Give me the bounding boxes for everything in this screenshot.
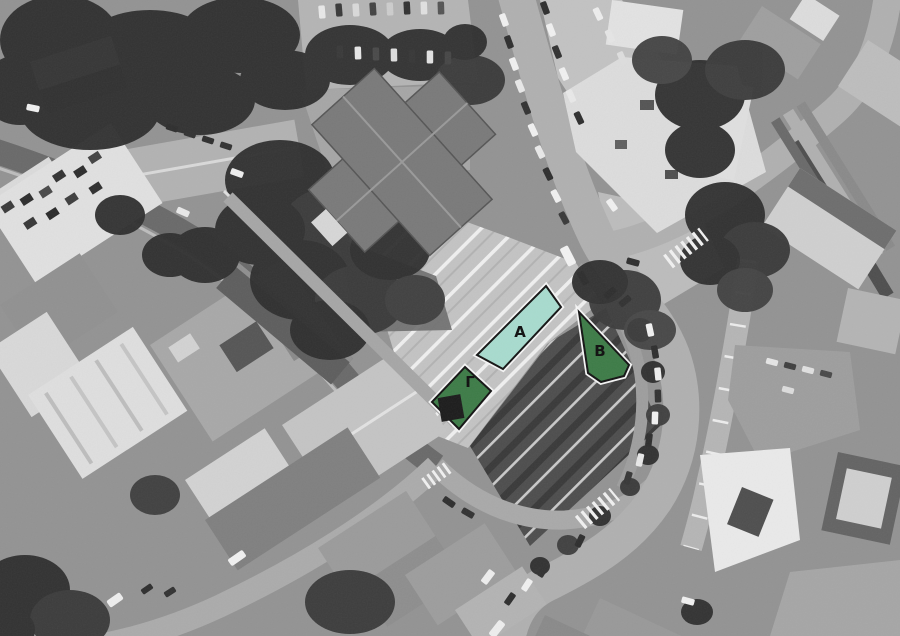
roof-object bbox=[615, 140, 627, 149]
tree-canopy bbox=[665, 122, 735, 178]
roof-object bbox=[640, 100, 654, 110]
zone-beta-label: Β bbox=[594, 342, 605, 360]
zone-gamma-marker bbox=[438, 394, 465, 422]
car bbox=[335, 3, 343, 17]
car bbox=[352, 3, 359, 16]
tree-canopy bbox=[145, 65, 255, 135]
tree-canopy bbox=[572, 260, 628, 304]
aerial-photo: Α Β Γ bbox=[0, 0, 900, 636]
zone-alpha-label: Α bbox=[514, 323, 526, 341]
car bbox=[654, 367, 662, 381]
car bbox=[369, 2, 376, 15]
car bbox=[437, 1, 444, 14]
car bbox=[373, 47, 380, 60]
car bbox=[654, 389, 661, 402]
tree-canopy bbox=[130, 475, 180, 515]
car bbox=[386, 2, 393, 15]
tree-canopy bbox=[385, 275, 445, 325]
car bbox=[651, 411, 658, 424]
car bbox=[409, 50, 416, 63]
car bbox=[403, 1, 410, 14]
aerial-photo-map: Α Β Γ bbox=[0, 0, 900, 636]
roof-object bbox=[665, 170, 678, 179]
car bbox=[318, 5, 326, 19]
tree-canopy bbox=[305, 570, 395, 634]
tree-canopy bbox=[142, 233, 198, 277]
car bbox=[420, 1, 427, 14]
tree-canopy bbox=[705, 40, 785, 100]
tree-canopy bbox=[717, 268, 773, 312]
car bbox=[427, 51, 434, 64]
car bbox=[336, 45, 343, 58]
car bbox=[354, 46, 361, 59]
zone-gamma-label: Γ bbox=[465, 373, 475, 391]
tree-canopy bbox=[95, 195, 145, 235]
car bbox=[445, 52, 452, 65]
tree-canopy bbox=[632, 36, 692, 84]
car bbox=[391, 48, 398, 61]
